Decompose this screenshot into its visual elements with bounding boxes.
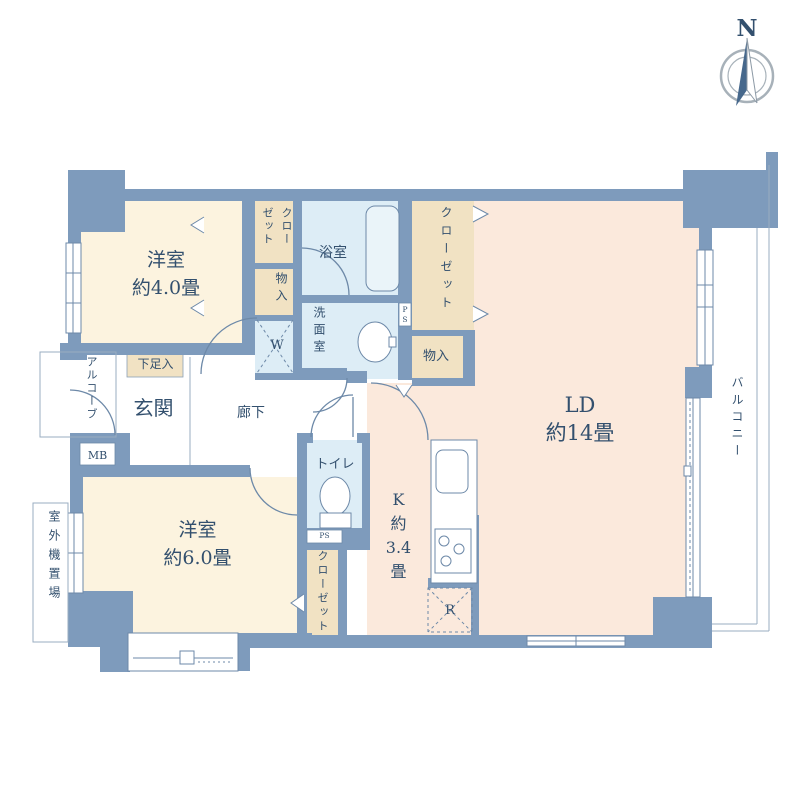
- pipe-space-east-box: [399, 303, 411, 326]
- closet-east-floor: [410, 200, 474, 334]
- balcony-sliding-door: [684, 398, 700, 597]
- pipe-space-south-box: [307, 530, 342, 543]
- washroom-sink-tap: [389, 337, 396, 347]
- storage-east-bottom-wall: [412, 378, 475, 386]
- kitchen-counter: [431, 440, 477, 583]
- kitchen-stove: [435, 529, 471, 573]
- bay-window: [128, 633, 238, 671]
- storage-east-right-wall: [463, 330, 475, 380]
- living-dining-floor: [474, 198, 700, 638]
- window-room1-left: [66, 243, 81, 333]
- storage-west-floor: [255, 265, 295, 318]
- compass-needle-dark: [736, 38, 747, 106]
- closet-column-wall: [293, 195, 302, 380]
- top-right-pillar: [683, 170, 778, 228]
- window-room2-left: [66, 513, 83, 593]
- toilet-door-arc: [311, 395, 353, 437]
- window-ld-right: [697, 250, 713, 365]
- bath-bottom-wall: [302, 295, 400, 303]
- floor-plan-drawing: [0, 0, 800, 800]
- window-ld-bottom: [527, 636, 625, 646]
- storage-washer-divider: [255, 315, 293, 321]
- washroom-bottom-wall-west: [295, 368, 347, 380]
- top-left-pillar: [68, 170, 125, 232]
- top-right-pillar-tail: [766, 152, 778, 172]
- bottom-wall: [305, 635, 712, 648]
- compass-needle-light: [747, 38, 757, 103]
- closet-south-floor: [305, 548, 340, 637]
- storage-east-floor: [410, 334, 465, 380]
- bottom-right-pillar: [653, 597, 712, 643]
- closet-north-floor: [255, 201, 295, 265]
- alcove-outline: [40, 352, 116, 437]
- left-wall-lower: [70, 477, 83, 515]
- washroom-door-arc: [313, 378, 347, 412]
- entrance-door-arc: [70, 390, 115, 435]
- washer-bottom-wall: [255, 373, 302, 380]
- toilet-tank: [320, 513, 351, 528]
- toilet-bowl: [320, 477, 350, 515]
- toilet-right-wall: [362, 433, 370, 543]
- washroom-bottom-wall-east: [347, 371, 367, 383]
- kitchen-sink: [436, 450, 468, 493]
- room1-right-wall: [242, 200, 255, 350]
- room1-bottom-wall: [82, 343, 255, 355]
- right-wall-step: [685, 367, 710, 398]
- compass: [721, 38, 773, 106]
- bathtub: [366, 206, 399, 291]
- closet-south-right-wall: [338, 543, 347, 645]
- bath-right-wall: [398, 195, 412, 380]
- closet-east-divider: [412, 330, 463, 336]
- meter-box-box: [80, 443, 115, 465]
- corridor-bottom-wall: [83, 465, 250, 477]
- closet-storage-divider: [255, 263, 293, 269]
- outdoor-unit-outline: [33, 503, 68, 642]
- bottom-left-tail: [100, 633, 130, 672]
- washroom-sink: [358, 322, 392, 362]
- floor-plan: 洋室 約4.0畳 クローゼット 物入 W 浴室 洗面室 P S クローゼット 物…: [0, 0, 800, 800]
